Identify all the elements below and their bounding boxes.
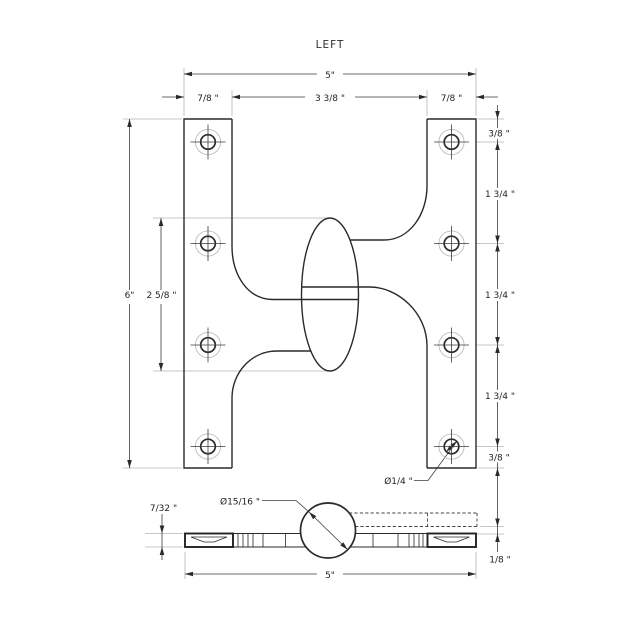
callout-knuckle-diameter: Ø15/16 "	[220, 497, 260, 508]
left-leaf	[184, 119, 358, 468]
label-backgrounds	[121, 68, 516, 580]
right-countersink-profile	[434, 537, 470, 542]
dim-top-edge-to-hole: 3/8 "	[488, 130, 510, 140]
dimension-lines	[130, 74, 499, 574]
right-leaf-end-block	[428, 534, 477, 548]
hinge-drawing-canvas: LEFT 5" 7/8 " 3 3/8 " 7/8 " 6" 2 5/8 " 3…	[0, 0, 631, 631]
knuckle-diameter-leader	[262, 501, 348, 550]
left-arm-lower-edge	[232, 351, 311, 398]
callout-screw-hole-diameter: Ø1/4 "	[384, 476, 413, 487]
hidden-leaf-dashed	[349, 513, 477, 527]
extension-lines	[123, 68, 504, 579]
dim-left-leaf-width: 7/8 "	[197, 94, 219, 104]
barrel-segment-ticks	[238, 534, 423, 548]
screw-hole	[434, 125, 469, 160]
drawing-title: LEFT	[316, 39, 345, 51]
screw-hole	[191, 125, 226, 160]
dim-hole-spacing-3: 1 3/4 "	[485, 392, 515, 402]
technical-drawing-page: LEFT 5" 7/8 " 3 3/8 " 7/8 " 6" 2 5/8 " 3…	[0, 0, 631, 631]
dim-knuckle-length: 2 5/8 "	[146, 291, 176, 301]
left-arm-upper-edge	[232, 246, 358, 300]
left-countersink-profile	[191, 537, 227, 542]
right-arm-upper-edge	[350, 186, 427, 240]
screw-hole	[191, 429, 226, 464]
dim-leaf-thickness: 7/32 "	[150, 504, 177, 514]
dim-hole-to-bottom-edge: 3/8 "	[488, 454, 510, 464]
hinge-edge-view	[185, 503, 477, 558]
dim-center-span: 3 3/8 "	[315, 94, 345, 104]
dim-leaf-offset: 1/8 "	[489, 556, 511, 566]
screw-hole	[434, 226, 469, 261]
screw-hole	[191, 226, 226, 261]
right-leaf	[302, 119, 477, 468]
dim-hole-spacing-2: 1 3/4 "	[485, 291, 515, 301]
screw-hole	[434, 328, 469, 363]
dimension-arrowheads	[127, 72, 500, 577]
hinge-front-view	[184, 119, 476, 468]
dim-overall-height: 6"	[125, 291, 135, 301]
dim-overall-width-top: 5"	[325, 71, 335, 81]
dim-overall-width-bottom: 5"	[325, 571, 335, 581]
left-leaf-end-block	[185, 534, 233, 548]
screw-hole-with-callout	[434, 429, 469, 464]
dim-hole-spacing-1: 1 3/4 "	[485, 190, 515, 200]
knuckle-ellipse	[302, 218, 359, 371]
right-arm-lower-edge	[302, 287, 428, 346]
screw-hole	[191, 328, 226, 363]
dim-right-leaf-width: 7/8 "	[441, 94, 463, 104]
